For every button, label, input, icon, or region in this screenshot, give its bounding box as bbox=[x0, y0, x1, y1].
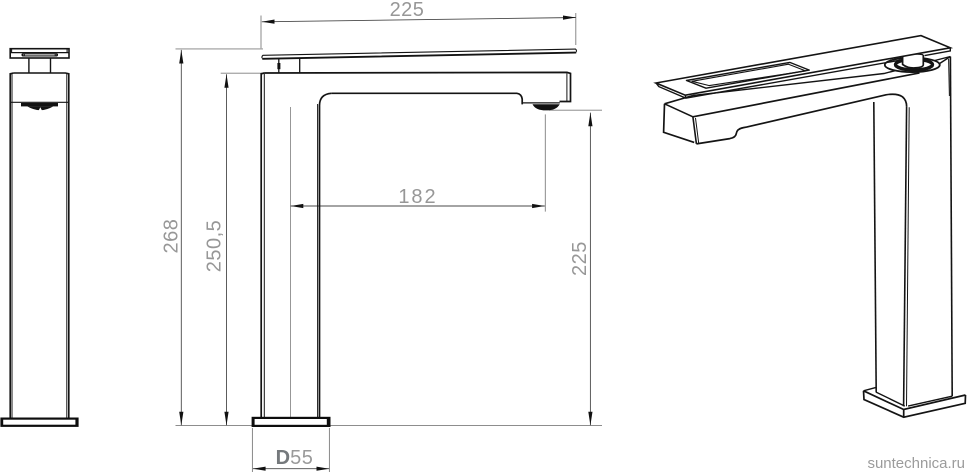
svg-text:suntechnica.ru: suntechnica.ru bbox=[867, 455, 965, 472]
svg-text:268: 268 bbox=[161, 219, 183, 254]
svg-text:182: 182 bbox=[398, 186, 437, 208]
svg-text:D55: D55 bbox=[276, 447, 314, 469]
svg-text:225: 225 bbox=[569, 241, 591, 276]
svg-text:250,5: 250,5 bbox=[204, 220, 226, 273]
svg-text:225: 225 bbox=[390, 0, 425, 21]
